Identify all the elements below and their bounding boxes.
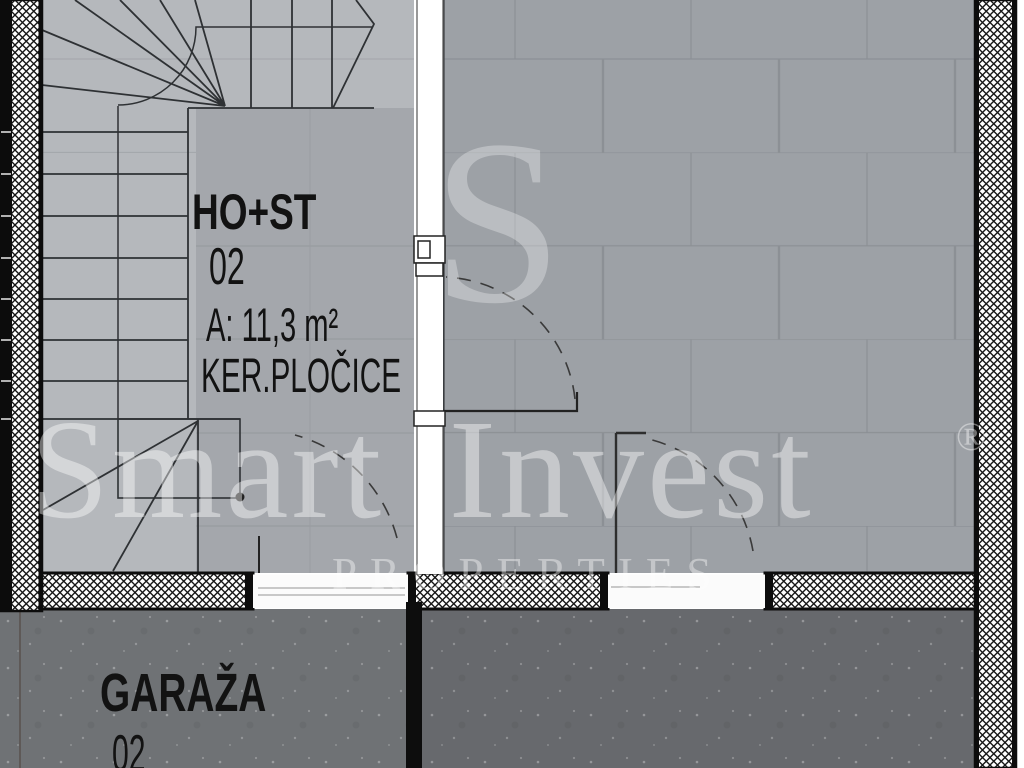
door-opening-right [608, 575, 765, 609]
hallway-room-flooring: KER.PLOČICE [201, 353, 401, 401]
floorplan-image: HO+ST 02 A: 11,3 m² KER.PLOČICE GARAŽA 0… [0, 0, 1024, 768]
hallway-room-area: A: 11,3 m² [206, 301, 338, 348]
partition-wall [414, 0, 445, 574]
floor-plan-drawing [0, 0, 1024, 768]
bottom-wall [0, 573, 977, 609]
left-wall [0, 0, 42, 611]
door-jamb-bottom [414, 411, 445, 426]
right-wall [975, 0, 1016, 768]
door-opening-left [253, 575, 408, 609]
garage-room-number: 02 [112, 728, 146, 768]
hallway-room-label: HO+ST [192, 187, 316, 237]
tiled-room-floor [443, 0, 975, 573]
garage-room-label: GARAŽA [100, 666, 266, 720]
garage-separator-wall [406, 602, 422, 768]
hallway-room-number: 02 [209, 241, 245, 293]
door-jamb-top [414, 236, 445, 276]
